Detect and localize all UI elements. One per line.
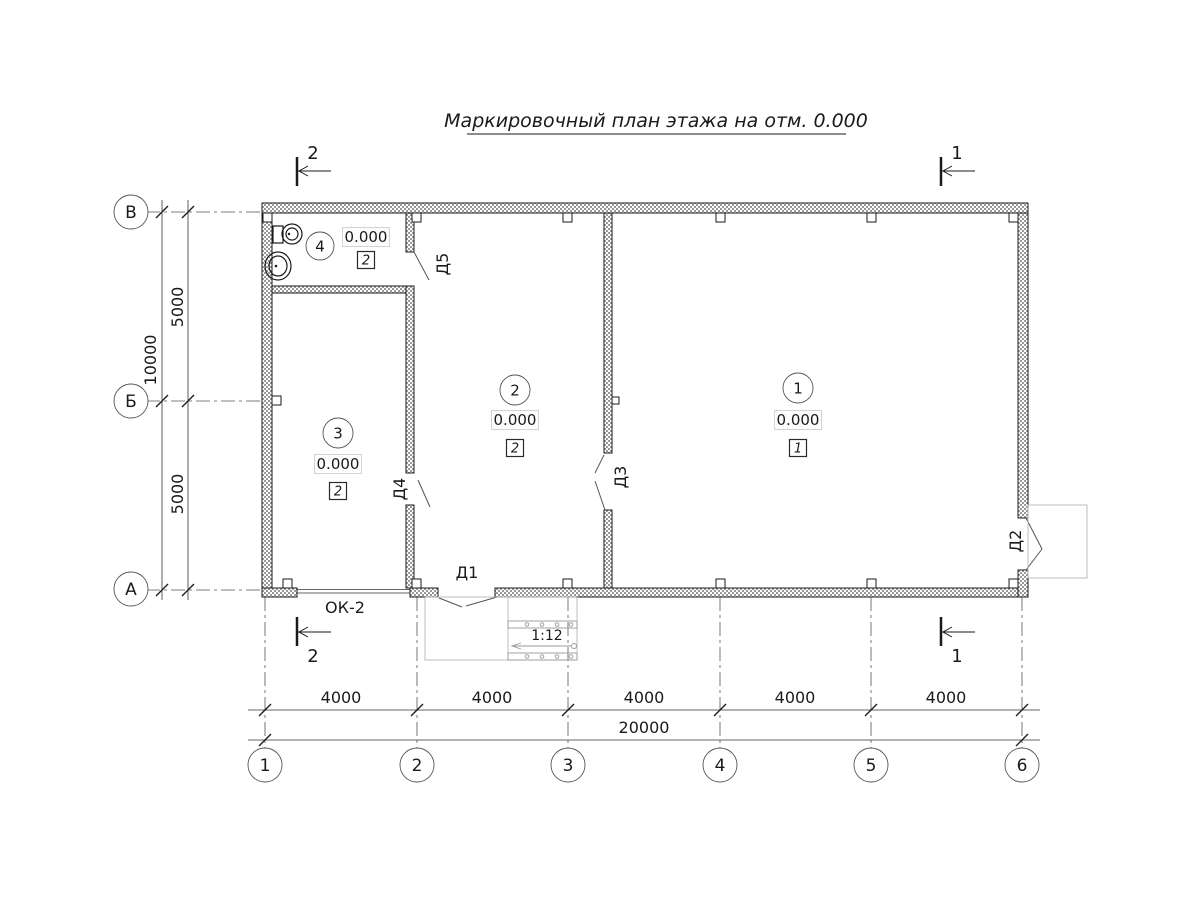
wall-top [262, 203, 1028, 213]
section-1-number: 1 [951, 143, 962, 164]
toilet-bowl-inner [286, 228, 298, 240]
pilaster [412, 213, 421, 222]
axis-label-a: А [125, 580, 137, 600]
section-1-number: 1 [951, 646, 962, 667]
room-4-elevation: 0.000 [345, 228, 388, 246]
room-2-number: 2 [510, 382, 520, 400]
pilaster [716, 213, 725, 222]
pilaster [563, 579, 572, 588]
wall-right-upper [1018, 213, 1028, 518]
pilaster-axis-b [272, 396, 281, 405]
dim-10000: 10000 [141, 335, 160, 386]
pilaster [412, 579, 421, 588]
door-d1-leaf-b [466, 597, 497, 606]
partition-rooms-2-1-lower [604, 510, 612, 588]
pilaster [1009, 213, 1018, 222]
drawing-sheet: Маркировочный план этажа на отм. 0.000 [0, 0, 1200, 900]
door-d5-leaf [414, 252, 429, 280]
side-porch-outline [1028, 505, 1087, 578]
room-2-floor-type: 2 [511, 442, 519, 457]
section-mark-2-top: 2 [297, 143, 331, 186]
dim-5000-bottom: 5000 [168, 474, 187, 515]
room-4-floor-type: 2 [362, 254, 370, 269]
section-mark-1-bottom: 1 [941, 617, 975, 667]
section-mark-1-top: 1 [941, 143, 975, 186]
axis-label-4: 4 [715, 756, 726, 776]
ramp-bolt [525, 623, 529, 627]
door-d3-leaf-a [595, 455, 604, 473]
partition-rooms-2-1-upper [604, 213, 612, 453]
pilaster [563, 213, 572, 222]
dim-5000-top: 5000 [168, 287, 187, 328]
section-2-number: 2 [307, 646, 318, 667]
ramp-edge-top [508, 621, 577, 628]
ramp-bolt [569, 623, 573, 627]
pilaster [1009, 579, 1018, 588]
axis-markers: В Б А 1 2 3 4 5 6 [114, 195, 1039, 782]
wall-bottom-right [495, 588, 1018, 597]
ramp-bolt [540, 655, 544, 659]
pilasters [263, 213, 1018, 588]
door-d4-label: Д4 [390, 478, 409, 501]
room-4-number: 4 [315, 238, 325, 256]
ramp-bolt [540, 623, 544, 627]
ramp-edge-bottom [508, 653, 577, 660]
floor-plan-drawing: Маркировочный план этажа на отм. 0.000 [0, 0, 1200, 900]
pilaster [263, 213, 272, 222]
door-d5-label: Д5 [433, 253, 452, 276]
axis-label-5: 5 [866, 756, 877, 776]
axis-label-b: Б [125, 392, 137, 412]
sink-drain [275, 265, 278, 268]
walls [262, 203, 1028, 597]
door-d2-label: Д2 [1006, 530, 1025, 553]
axis-label-2: 2 [412, 756, 423, 776]
partition-room4-bottom [272, 286, 406, 293]
toilet-bowl-outer [282, 224, 302, 244]
window-ok2-label: ОК-2 [325, 598, 365, 617]
section-2-number: 2 [307, 143, 318, 164]
axis-label-v: В [125, 203, 137, 223]
room-3-floor-type: 2 [334, 485, 342, 500]
room-annotations: 1 0.000 1 2 0.000 2 3 0.000 2 4 0.000 2 [306, 228, 822, 500]
porch-ramp: 1:12 [425, 505, 1087, 660]
pilaster [283, 579, 292, 588]
ramp-slope-label: 1:12 [531, 628, 562, 644]
door-d3-leaf-b [595, 481, 605, 510]
dim-4000-4: 4000 [775, 688, 816, 707]
wall-bottom-mid [410, 588, 438, 597]
toilet-dot [288, 233, 290, 235]
door-d3-label: Д3 [611, 466, 630, 489]
room-3-elevation: 0.000 [317, 455, 360, 473]
door-d4-leaf [418, 480, 430, 507]
pilaster [716, 579, 725, 588]
axis-label-6: 6 [1017, 756, 1028, 776]
room-2-elevation: 0.000 [494, 411, 537, 429]
room-1-number: 1 [793, 380, 803, 398]
room-1-floor-type: 1 [794, 442, 802, 457]
section-mark-2-bottom: 2 [297, 617, 331, 667]
ramp-arrow-origin [572, 644, 577, 649]
door-d1-label: Д1 [456, 563, 479, 582]
door-d1-leaf-a [439, 598, 462, 607]
room-1-elevation: 0.000 [777, 411, 820, 429]
dim-20000: 20000 [619, 718, 670, 737]
pilaster [867, 579, 876, 588]
window-ok2 [297, 590, 410, 594]
axis-label-1: 1 [260, 756, 271, 776]
ramp-bolt [569, 655, 573, 659]
drawing-title: Маркировочный план этажа на отм. 0.000 [444, 110, 868, 132]
dim-4000-5: 4000 [926, 688, 967, 707]
title-block: Маркировочный план этажа на отм. 0.000 [444, 110, 868, 134]
ramp-bolt [555, 623, 559, 627]
pilaster [867, 213, 876, 222]
dim-4000-3: 4000 [624, 688, 665, 707]
dim-4000-2: 4000 [472, 688, 513, 707]
dimension-lines: 4000 4000 4000 4000 4000 20000 5000 5000… [141, 200, 1040, 746]
ramp-bolt [525, 655, 529, 659]
dim-4000-1: 4000 [321, 688, 362, 707]
axis-label-3: 3 [563, 756, 574, 776]
wall-right-lower [1018, 570, 1028, 597]
room-3-number: 3 [333, 425, 343, 443]
wall-bottom-left [262, 588, 297, 597]
ramp-bolt [555, 655, 559, 659]
opening-labels: Д1 Д2 Д3 Д4 Д5 ОК-2 [325, 253, 1025, 617]
partition-rooms-3-2-upper [406, 286, 414, 473]
pilaster-partition-axis-b [612, 397, 619, 404]
partition-rooms-3-2-lower [406, 505, 414, 588]
